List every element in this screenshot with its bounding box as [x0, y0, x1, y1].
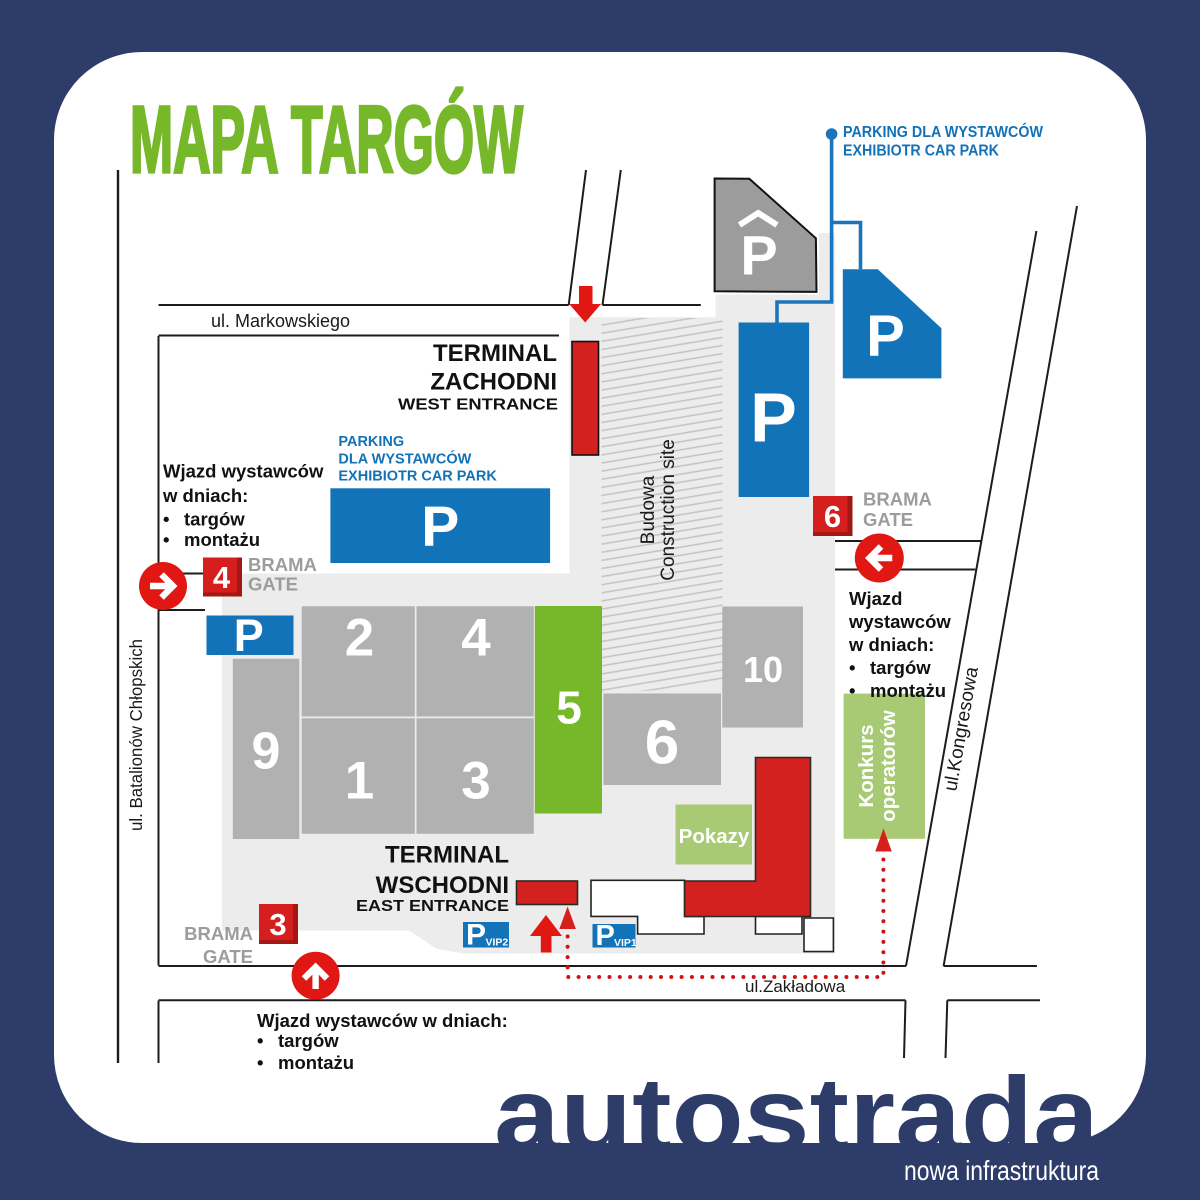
svg-text:Wjazd wystawców w dniach:: Wjazd wystawców w dniach:	[257, 1010, 508, 1031]
svg-text:w dniach:: w dniach:	[162, 485, 248, 506]
svg-text:montażu: montażu	[870, 680, 946, 701]
svg-text:Wjazd: Wjazd	[849, 588, 902, 609]
svg-text:PARKING DLA WYSTAWCÓW: PARKING DLA WYSTAWCÓW	[843, 123, 1043, 141]
svg-text:ul. Markowskiego: ul. Markowskiego	[211, 311, 350, 331]
svg-text:4: 4	[213, 560, 231, 595]
svg-text:P: P	[466, 919, 486, 952]
svg-text:•: •	[849, 657, 855, 678]
svg-text:TERMINAL: TERMINAL	[385, 842, 509, 869]
svg-text:BRAMA: BRAMA	[184, 923, 253, 944]
svg-text:BRAMA: BRAMA	[863, 489, 932, 510]
svg-text:EXHIBIOTR CAR PARK: EXHIBIOTR CAR PARK	[843, 143, 1000, 160]
svg-text:PARKING: PARKING	[338, 434, 404, 450]
svg-text:MAPA TARGÓW: MAPA TARGÓW	[130, 87, 523, 193]
svg-text:EXHIBIOTR CAR PARK: EXHIBIOTR CAR PARK	[338, 469, 497, 485]
svg-text:6: 6	[645, 709, 679, 778]
svg-text:•: •	[849, 680, 855, 701]
svg-text:WSCHODNI: WSCHODNI	[376, 872, 509, 899]
svg-text:P: P	[421, 495, 459, 559]
svg-text:Construction site: Construction site	[658, 439, 679, 581]
svg-text:BRAMA: BRAMA	[248, 554, 317, 575]
svg-text:ul. Batalionów Chłopskich: ul. Batalionów Chłopskich	[126, 639, 146, 831]
svg-text:10: 10	[743, 649, 783, 690]
svg-text:operatorów: operatorów	[877, 710, 900, 822]
svg-text:GATE: GATE	[203, 946, 253, 967]
svg-text:P: P	[740, 224, 777, 287]
svg-text:Pokazy: Pokazy	[679, 825, 750, 848]
svg-text:P: P	[596, 920, 615, 952]
svg-text:targów: targów	[870, 657, 931, 678]
svg-text:9: 9	[252, 723, 281, 781]
svg-text:P: P	[866, 304, 905, 369]
svg-text:ZACHODNI: ZACHODNI	[430, 369, 557, 396]
svg-text:5: 5	[556, 682, 582, 734]
svg-text:1: 1	[345, 752, 374, 811]
svg-text:P: P	[750, 379, 797, 457]
svg-text:Konkurs: Konkurs	[855, 724, 878, 807]
svg-text:P: P	[234, 610, 264, 661]
svg-text:Wjazd wystawców: Wjazd wystawców	[163, 461, 324, 482]
svg-text:Budowa: Budowa	[638, 475, 659, 544]
svg-text:WEST ENTRANCE: WEST ENTRANCE	[398, 397, 558, 414]
svg-text:w dniach:: w dniach:	[848, 634, 934, 655]
svg-text:wystawców: wystawców	[848, 611, 951, 632]
svg-text:targów: targów	[278, 1030, 339, 1051]
svg-text:•: •	[163, 529, 169, 550]
svg-text:VIP2: VIP2	[486, 937, 509, 949]
svg-text:targów: targów	[184, 508, 245, 529]
svg-text:•: •	[257, 1052, 263, 1073]
svg-text:3: 3	[269, 907, 286, 942]
svg-text:GATE: GATE	[248, 574, 298, 595]
svg-text:DLA WYSTAWCÓW: DLA WYSTAWCÓW	[338, 449, 471, 467]
svg-text:TERMINAL: TERMINAL	[433, 340, 557, 367]
svg-text:2: 2	[345, 609, 374, 668]
svg-text:VIP1: VIP1	[614, 937, 637, 949]
svg-text:montażu: montażu	[278, 1052, 354, 1073]
svg-text:6: 6	[824, 499, 841, 534]
svg-text:EAST ENTRANCE: EAST ENTRANCE	[356, 898, 509, 915]
svg-text:•: •	[163, 508, 169, 529]
svg-text:nowa infrastruktura: nowa infrastruktura	[904, 1155, 1099, 1186]
svg-text:3: 3	[461, 752, 490, 811]
svg-text:ul.Zakładowa: ul.Zakładowa	[745, 977, 846, 996]
svg-text:montażu: montażu	[184, 529, 260, 550]
svg-text:•: •	[257, 1030, 263, 1051]
svg-text:4: 4	[461, 609, 491, 668]
svg-text:GATE: GATE	[863, 509, 913, 530]
